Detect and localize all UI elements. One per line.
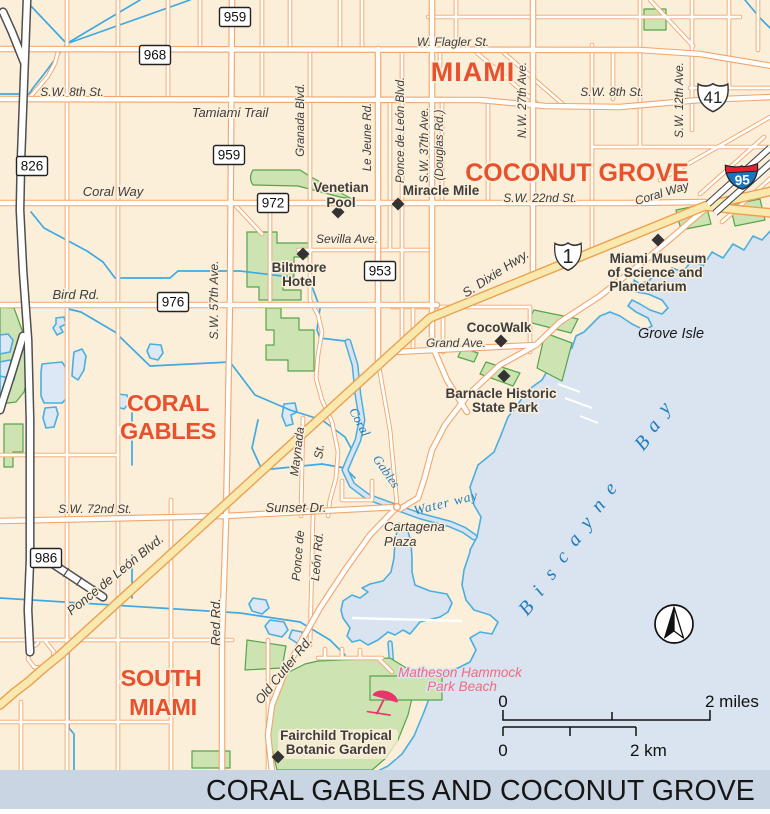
svg-text:Grand Ave.: Grand Ave. xyxy=(426,336,486,350)
svg-text:Planetarium: Planetarium xyxy=(609,279,686,294)
svg-text:Plaza: Plaza xyxy=(384,534,417,549)
svg-text:Park Beach: Park Beach xyxy=(427,679,497,694)
svg-text:CORAL GABLES AND COCONUT GROVE: CORAL GABLES AND COCONUT GROVE xyxy=(206,775,755,807)
svg-text:S.W. 8th St.: S.W. 8th St. xyxy=(580,85,644,99)
svg-text:CORAL: CORAL xyxy=(127,390,209,416)
svg-text:Granada Blvd.: Granada Blvd. xyxy=(295,83,307,157)
svg-text:Grove Isle: Grove Isle xyxy=(638,326,704,342)
svg-text:S.W. 22nd St.: S.W. 22nd St. xyxy=(503,191,577,205)
svg-text:N.W. 27th Ave.: N.W. 27th Ave. xyxy=(517,62,529,138)
svg-text:Miami Museum: Miami Museum xyxy=(610,251,707,266)
svg-text:CocoWalk: CocoWalk xyxy=(467,320,532,335)
svg-text:41: 41 xyxy=(704,88,723,107)
svg-text:0: 0 xyxy=(498,692,507,711)
svg-text:SOUTH: SOUTH xyxy=(121,665,202,691)
svg-text:Pool: Pool xyxy=(326,195,355,210)
svg-text:W. Flagler St.: W. Flagler St. xyxy=(417,35,489,49)
svg-text:986: 986 xyxy=(35,551,58,566)
svg-text:Fairchild Tropical: Fairchild Tropical xyxy=(280,728,392,743)
svg-text:95: 95 xyxy=(734,172,750,188)
svg-text:Le Jeune Rd.: Le Jeune Rd. xyxy=(362,103,374,171)
svg-text:0: 0 xyxy=(498,741,507,760)
svg-text:S.W. 37th Ave.: S.W. 37th Ave. xyxy=(419,107,431,183)
svg-text:Botanic Garden: Botanic Garden xyxy=(286,742,387,757)
svg-text:959: 959 xyxy=(224,10,247,25)
svg-text:S.W. 72nd St.: S.W. 72nd St. xyxy=(58,502,132,516)
svg-text:Biltmore: Biltmore xyxy=(272,260,327,275)
svg-text:Coral Way: Coral Way xyxy=(83,184,145,199)
svg-text:959: 959 xyxy=(218,148,241,163)
svg-text:St.: St. xyxy=(311,443,327,459)
svg-text:S.W. 12th Ave.: S.W. 12th Ave. xyxy=(674,62,686,138)
svg-text:(Douglas Rd.): (Douglas Rd.) xyxy=(434,109,446,180)
svg-text:Venetian: Venetian xyxy=(313,180,369,195)
svg-text:MIAMI: MIAMI xyxy=(129,694,197,720)
svg-text:GABLES: GABLES xyxy=(120,418,216,444)
svg-text:COCONUT GROVE: COCONUT GROVE xyxy=(465,159,689,187)
svg-text:826: 826 xyxy=(21,159,44,174)
svg-text:Matheson Hammock: Matheson Hammock xyxy=(398,665,523,680)
svg-text:Barnacle Historic: Barnacle Historic xyxy=(445,386,557,401)
svg-text:of Science and: of Science and xyxy=(607,265,702,280)
svg-text:2 km: 2 km xyxy=(630,741,667,760)
svg-text:2 miles: 2 miles xyxy=(705,692,759,711)
svg-text:Bird Rd.: Bird Rd. xyxy=(53,287,100,302)
svg-text:Sevilla Ave.: Sevilla Ave. xyxy=(316,232,378,246)
svg-text:Tamiami Trail: Tamiami Trail xyxy=(192,105,270,120)
svg-text:976: 976 xyxy=(162,295,185,310)
svg-text:Sunset Dr.: Sunset Dr. xyxy=(266,500,327,515)
svg-text:Miracle Mile: Miracle Mile xyxy=(403,183,480,198)
svg-text:Red Rd.: Red Rd. xyxy=(208,598,223,646)
svg-text:State Park: State Park xyxy=(472,400,539,415)
svg-text:Ponce de León Blvd.: Ponce de León Blvd. xyxy=(395,77,407,183)
svg-text:1: 1 xyxy=(562,246,573,268)
svg-text:972: 972 xyxy=(262,196,285,211)
svg-text:968: 968 xyxy=(144,48,167,63)
svg-text:Cartagena: Cartagena xyxy=(384,519,445,534)
svg-text:S.W. 57th Ave.: S.W. 57th Ave. xyxy=(207,261,221,340)
svg-text:Hotel: Hotel xyxy=(282,274,316,289)
svg-text:MIAMI: MIAMI xyxy=(431,57,515,87)
svg-text:S.W. 8th St.: S.W. 8th St. xyxy=(40,85,104,99)
svg-text:953: 953 xyxy=(369,264,392,279)
